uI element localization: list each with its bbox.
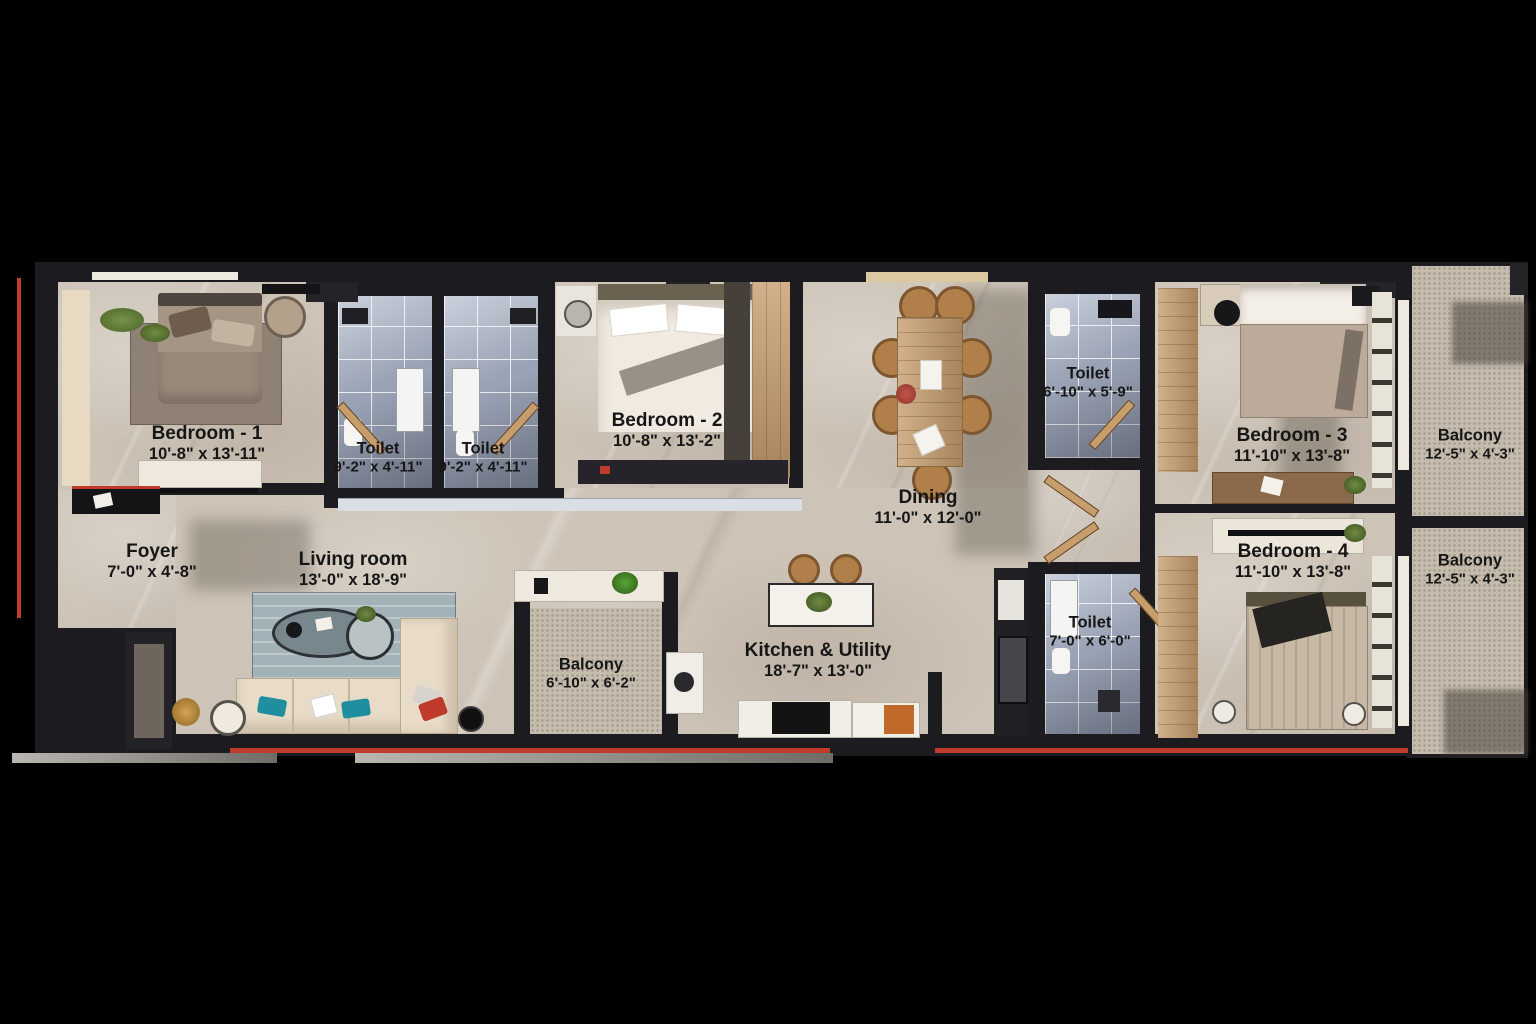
toilet-2-name: Toilet bbox=[439, 439, 528, 458]
toilet-1-vanity bbox=[342, 308, 368, 324]
toilet-4-wc bbox=[1052, 648, 1070, 674]
toilet-3-vanity bbox=[1098, 300, 1132, 318]
balcony-4-dims: 12'-5" x 4'-3" bbox=[1425, 571, 1515, 589]
exterior-wall-left bbox=[35, 262, 58, 636]
bedroom-4-label: Bedroom - 4 11'-10" x 13'-8" bbox=[1235, 541, 1351, 583]
balcony-corner-column bbox=[1510, 263, 1528, 295]
bedroom-1-duvet bbox=[158, 352, 262, 404]
tv-console-decor bbox=[534, 578, 548, 594]
kitchen-label: Kitchen & Utility 18'-7" x 13'-0" bbox=[745, 640, 892, 682]
wall-toilets-top bbox=[324, 282, 555, 296]
bedroom-1-headboard bbox=[158, 293, 262, 307]
balcony-4-name: Balcony bbox=[1425, 551, 1515, 570]
toilet-3-name: Toilet bbox=[1043, 364, 1133, 383]
living-table-bowl bbox=[286, 622, 302, 638]
bedroom-4-plant bbox=[1344, 524, 1366, 542]
bedroom-3-chair bbox=[1214, 300, 1240, 326]
bedroom-3-name: Bedroom - 3 bbox=[1234, 425, 1350, 447]
bedroom-2-name: Bedroom - 2 bbox=[612, 410, 723, 432]
bedroom-4-dims: 11'-10" x 13'-8" bbox=[1235, 563, 1351, 582]
balcony-divider-wall bbox=[1406, 516, 1528, 528]
wall-toilet3-bottom bbox=[1028, 458, 1140, 470]
balcony-4-label: Balcony 12'-5" x 4'-3" bbox=[1425, 551, 1515, 588]
bedroom-1-window-ledge bbox=[62, 290, 90, 486]
window-bedroom3-right bbox=[1398, 300, 1409, 470]
toilet-4-label: Toilet 7'-0" x 6'-0" bbox=[1049, 613, 1130, 650]
utility-appliance-white bbox=[998, 580, 1024, 620]
kitchen-utility-wall bbox=[928, 672, 942, 736]
dining-name: Dining bbox=[875, 487, 982, 509]
toilet-1-label: Toilet 9'-2" x 4'-11" bbox=[334, 439, 423, 476]
ground-shadow-left bbox=[12, 753, 277, 763]
living-balcony-name: Balcony bbox=[546, 655, 636, 674]
balcony-3-label: Balcony 12'-5" x 4'-3" bbox=[1425, 426, 1515, 463]
bedroom-4-window-ledge bbox=[1372, 556, 1392, 728]
bedroom-3-dims: 11'-10" x 13'-8" bbox=[1234, 447, 1350, 466]
toilet-4-mat bbox=[1098, 690, 1120, 712]
bedroom-1-tv-bar bbox=[148, 488, 258, 493]
kitchen-top-ledge bbox=[866, 272, 988, 282]
bedroom-3-console bbox=[1212, 472, 1354, 504]
toilet-4-name: Toilet bbox=[1049, 613, 1130, 632]
wall-bedroom3-4-divider bbox=[1155, 504, 1395, 513]
balcony-4-shadow bbox=[1444, 690, 1528, 754]
bedroom-2-wardrobe-dark bbox=[724, 282, 750, 478]
bedroom-4-nightstand-2 bbox=[1342, 702, 1366, 726]
foyer-console bbox=[72, 486, 160, 514]
toilet-2-shower-panel bbox=[452, 368, 480, 432]
accent-line-left bbox=[17, 278, 21, 618]
toilet-1-name: Toilet bbox=[334, 439, 423, 458]
ground-shadow-mid bbox=[355, 753, 833, 763]
bedroom-1-plant bbox=[100, 308, 144, 332]
bedroom-1-dresser bbox=[262, 284, 320, 294]
dining-dims: 11'-0" x 12'-0" bbox=[875, 509, 982, 528]
kitchen-name: Kitchen & Utility bbox=[745, 640, 892, 662]
toilet-4-dims: 7'-0" x 6'-0" bbox=[1049, 633, 1130, 651]
balcony-3-name: Balcony bbox=[1425, 426, 1515, 445]
living-table-plant bbox=[356, 606, 376, 622]
bedroom-3-label: Bedroom - 3 11'-10" x 13'-8" bbox=[1234, 425, 1350, 467]
bedroom-4-nightstand-1 bbox=[1212, 700, 1236, 724]
kitchen-sink-basin bbox=[674, 672, 694, 692]
wall-toilet2-right bbox=[538, 262, 555, 496]
kitchen-cooktop bbox=[772, 702, 830, 734]
bedroom-2-dims: 10'-8" x 13'-2" bbox=[612, 432, 723, 451]
utility-cabinet bbox=[884, 705, 914, 734]
bedroom-1-label: Bedroom - 1 10'-8" x 13'-11" bbox=[149, 423, 265, 465]
living-balcony-left-wall bbox=[514, 598, 530, 750]
living-room-name: Living room bbox=[299, 549, 408, 571]
passage-shelf-strip bbox=[338, 498, 802, 511]
bedroom-3-plant bbox=[1344, 476, 1366, 494]
toilet-2-vanity bbox=[510, 308, 536, 324]
living-balcony-dims: 6'-10" x 6'-2" bbox=[546, 675, 636, 693]
bedroom-4-wardrobe bbox=[1158, 556, 1198, 738]
living-side-table bbox=[210, 700, 246, 736]
balcony-3-dims: 12'-5" x 4'-3" bbox=[1425, 446, 1515, 464]
utility-appliance-dark bbox=[998, 636, 1028, 704]
bedroom-1-side-table bbox=[264, 296, 306, 338]
balcony-3-shadow bbox=[1452, 302, 1528, 364]
toilet-1-dims: 9'-2" x 4'-11" bbox=[334, 459, 423, 477]
kitchen-dims: 18'-7" x 13'-0" bbox=[745, 662, 892, 681]
entrance-door-leaf bbox=[134, 644, 164, 738]
living-room-label: Living room 13'-0" x 18'-9" bbox=[299, 549, 408, 591]
wall-bedrooms-left bbox=[1140, 262, 1155, 740]
foyer-label: Foyer 7'-0" x 4'-8" bbox=[107, 541, 197, 583]
foyer-console-accent bbox=[72, 486, 160, 489]
foyer-dims: 7'-0" x 4'-8" bbox=[107, 563, 197, 582]
bedroom-4-name: Bedroom - 4 bbox=[1235, 541, 1351, 563]
sofa-divider-1 bbox=[292, 678, 294, 732]
dining-placemat bbox=[920, 360, 942, 390]
foyer-name: Foyer bbox=[107, 541, 197, 563]
bedroom-2-wardrobe-wood bbox=[752, 282, 790, 478]
tv-console-plant bbox=[612, 572, 638, 594]
toilet-3-dims: 6'-10" x 5'-9" bbox=[1043, 384, 1133, 402]
window-bedroom1-top bbox=[92, 272, 238, 280]
wall-toilets-bottom bbox=[324, 488, 564, 498]
bedroom-1-dims: 10'-8" x 13'-11" bbox=[149, 445, 265, 464]
dining-label: Dining 11'-0" x 12'-0" bbox=[875, 487, 982, 529]
kitchen-stool-2 bbox=[830, 554, 862, 586]
wall-bedroom2-dining bbox=[789, 262, 803, 488]
bedroom-3-pillows bbox=[1240, 284, 1366, 324]
bedroom-4-tv-bar bbox=[1228, 530, 1346, 536]
toilet-2-label: Toilet 9'-2" x 4'-11" bbox=[439, 439, 528, 476]
living-black-tray bbox=[458, 706, 484, 732]
bedroom-3-wardrobe bbox=[1158, 288, 1198, 472]
toilet-2-dims: 9'-2" x 4'-11" bbox=[439, 459, 528, 477]
kitchen-island-plant bbox=[806, 592, 832, 612]
bedroom-1-name: Bedroom - 1 bbox=[149, 423, 265, 445]
foyer-shadow bbox=[190, 520, 310, 590]
accent-line-bottom-right bbox=[935, 748, 1408, 753]
window-bedroom4-right bbox=[1398, 556, 1409, 726]
floor-plan-canvas: Bedroom - 1 10'-8" x 13'-11" Toilet 9'-2… bbox=[0, 0, 1536, 1024]
kitchen-stool-1 bbox=[788, 554, 820, 586]
wall-toilet4-top bbox=[1028, 562, 1140, 574]
bedroom-2-tv-decor bbox=[600, 466, 610, 474]
toilet-3-wc bbox=[1050, 308, 1070, 336]
bedroom-2-vanity-basin bbox=[564, 300, 592, 328]
exterior-wall-top bbox=[35, 262, 1410, 282]
bedroom-1-plant-2 bbox=[140, 324, 170, 342]
bedroom-2-label: Bedroom - 2 10'-8" x 13'-2" bbox=[612, 410, 723, 452]
dining-red-bowl bbox=[896, 384, 916, 404]
living-room-dims: 13'-0" x 18'-9" bbox=[299, 571, 408, 590]
bedroom-3-window-ledge bbox=[1372, 292, 1392, 488]
living-dry-plant bbox=[172, 698, 200, 726]
toilet-1-shower-panel bbox=[396, 368, 424, 432]
toilet-3-label: Toilet 6'-10" x 5'-9" bbox=[1043, 364, 1133, 401]
living-balcony-label: Balcony 6'-10" x 6'-2" bbox=[546, 655, 636, 692]
